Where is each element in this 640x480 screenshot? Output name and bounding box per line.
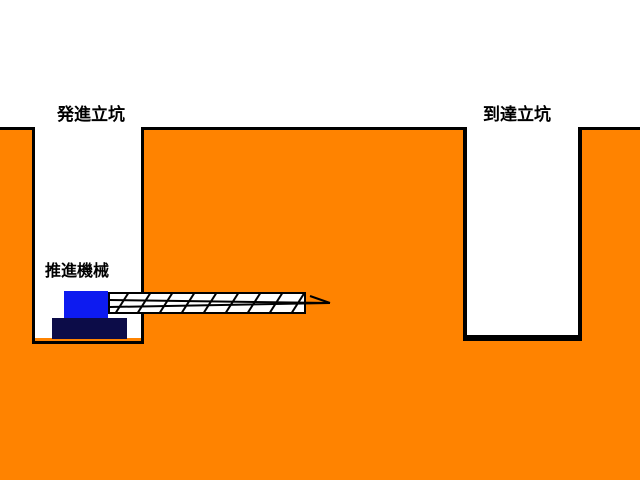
arrival-shaft-wall-left <box>463 127 467 341</box>
start-shaft-label: 発進立坑 <box>57 106 125 123</box>
pipe-jacking-diagram: 発進立坑 到達立坑 推進機械 <box>0 0 640 480</box>
machine-base <box>52 318 127 339</box>
machine-label: 推進機械 <box>45 264 109 280</box>
arrival-shaft-bottom <box>463 335 582 341</box>
arrival-shaft <box>463 127 582 341</box>
machine-body <box>64 291 108 318</box>
arrival-shaft-interior <box>467 127 578 335</box>
start-shaft-wall-left <box>32 127 35 344</box>
start-shaft-bottom <box>32 341 144 344</box>
arrival-shaft-wall-right <box>578 127 582 341</box>
arrival-shaft-label: 到達立坑 <box>483 106 551 123</box>
diagram-drawing <box>0 0 640 480</box>
